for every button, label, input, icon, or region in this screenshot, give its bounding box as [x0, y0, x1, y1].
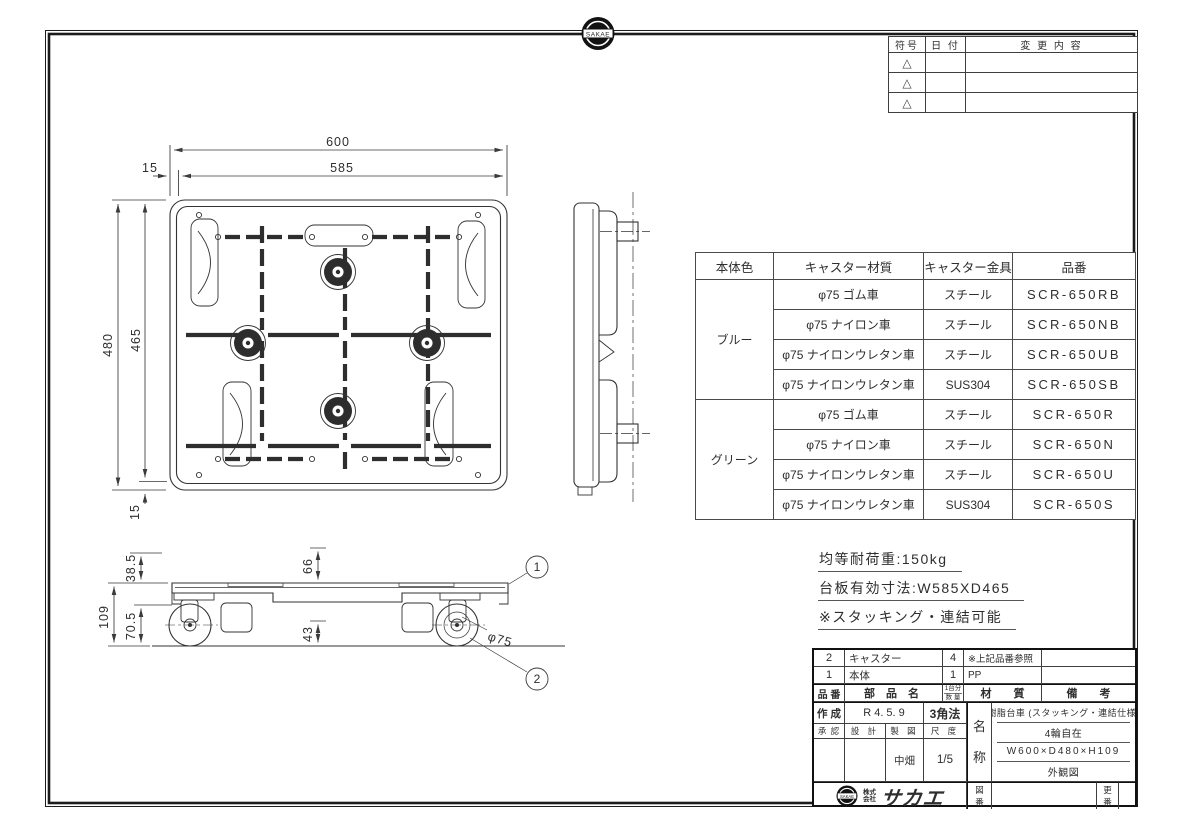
drawing-sheet: SAKAE [0, 0, 1183, 837]
approval-value [814, 739, 845, 782]
revision-no-label: 更 番 [1097, 782, 1119, 809]
rev-triangle-icon: △ [889, 73, 926, 93]
dim-15-bottom: 15 [128, 504, 142, 520]
name-label: 名 称 [967, 702, 992, 782]
caster-material: φ75 ナイロンウレタン車 [774, 340, 924, 370]
drafting-label: 製 図 [886, 724, 924, 739]
part-material-cell: ※上記品番参照 [964, 650, 1042, 667]
name-label-char2: 称 [973, 751, 986, 764]
part-no: SCR-650U [1013, 460, 1136, 490]
rev-col-symbol: 符号 [889, 37, 926, 53]
caster-material: φ75 ゴム車 [774, 400, 924, 430]
caster-material: φ75 ゴム車 [774, 280, 924, 310]
part-material-cell: PP [964, 667, 1042, 684]
caster-bracket: スチール [924, 280, 1013, 310]
part-name-cell: 本体 [845, 667, 943, 684]
dim-70-5: 70.5 [124, 612, 138, 640]
table-row: ブルー φ75 ゴム車 スチール SCR-650RB [696, 280, 1136, 310]
name-label-char1: 名 [973, 720, 986, 733]
revision-no-char2: 番 [1103, 798, 1112, 807]
rev-date-cell [926, 73, 966, 93]
dim-480: 480 [101, 333, 115, 357]
dim-66: 66 [301, 558, 315, 574]
caster-material: φ75 ナイロン車 [774, 430, 924, 460]
note-load-capacity: 均等耐荷重:150kg [818, 549, 962, 572]
dim-38-5: 38.5 [124, 554, 138, 582]
header-qty-line2: 数 量 [944, 694, 963, 702]
spec-col-part-no: 品番 [1013, 253, 1136, 280]
rev-date-cell [926, 53, 966, 73]
header-part-no: 品 番 [814, 684, 845, 702]
drawing-no-char2: 番 [975, 798, 984, 807]
part-remarks-cell [1042, 667, 1135, 684]
rev-triangle-icon: △ [889, 93, 926, 113]
scale-label: 尺 度 [924, 724, 967, 739]
dim-109: 109 [97, 605, 111, 629]
part-no: SCR-650RB [1013, 280, 1136, 310]
product-name-block: 樹脂台車 (スタッキング・連結仕様) 4輪自在 W600×D480×H109 外… [992, 702, 1135, 782]
drafter-name: 中畑 [886, 739, 924, 782]
caster-material: φ75 ナイロンウレタン車 [774, 490, 924, 520]
dim-15-left: 15 [142, 161, 158, 175]
dim-585: 585 [330, 161, 354, 175]
caster-bracket: スチール [924, 460, 1013, 490]
front-dimensions [108, 548, 548, 690]
rev-triangle-icon: △ [889, 53, 926, 73]
design-value [845, 739, 886, 782]
dim-600: 600 [326, 135, 350, 149]
part-no: SCR-650NB [1013, 310, 1136, 340]
header-qty-line1: 1台分 [944, 685, 963, 694]
note-stacking: ※スタッキング・連結可能 [818, 607, 1016, 630]
plan-view [170, 200, 507, 490]
dim-wheel-dia: φ75 [486, 629, 514, 649]
product-line-2: 4輪自在 [997, 723, 1130, 743]
caster-bracket: スチール [924, 340, 1013, 370]
projection-method: 3角法 [924, 702, 967, 724]
header-part-name: 部 品 名 [845, 684, 943, 702]
plan-dimensions [112, 145, 507, 504]
table-row: グリーン φ75 ゴム車 スチール SCR-650R [696, 400, 1136, 430]
note-deck-size: 台板有効寸法:W585XD465 [818, 578, 1024, 601]
company-logo: SAKAE 株式 会社 サカエ [814, 782, 967, 809]
design-label: 設 計 [845, 724, 886, 739]
caster-bracket: SUS304 [924, 370, 1013, 400]
part-no: SCR-650SB [1013, 370, 1136, 400]
rev-col-change: 変 更 内 容 [966, 37, 1138, 53]
sakae-badge-icon: SAKAE [582, 17, 615, 50]
spec-col-caster-bracket: キャスター金具 [924, 253, 1013, 280]
body-color-blue: ブルー [696, 280, 774, 400]
badge-text-small: SAKAE [840, 794, 854, 799]
product-line-3: W600×D480×H109 [997, 743, 1130, 763]
spec-col-caster-material: キャスター材質 [774, 253, 924, 280]
rev-col-date: 日 付 [926, 37, 966, 53]
caster-bracket: スチール [924, 400, 1013, 430]
spec-col-body-color: 本体色 [696, 253, 774, 280]
caster-bracket: SUS304 [924, 490, 1013, 520]
company-name: サカエ [879, 782, 945, 809]
header-remarks: 備 考 [1042, 684, 1135, 702]
side-view [574, 192, 650, 502]
part-no: SCR-650N [1013, 430, 1136, 460]
rev-change-cell [966, 93, 1138, 113]
part-no: SCR-650R [1013, 400, 1136, 430]
part-remarks-cell [1042, 650, 1135, 667]
drawing-no-label: 図 番 [967, 782, 992, 809]
rev-change-cell [966, 53, 1138, 73]
revision-no-value [1119, 782, 1135, 809]
created-date: R 4. 5. 9 [845, 702, 924, 724]
company-prefix-top: 株式 [863, 789, 876, 796]
revision-table: 符号 日 付 変 更 内 容 △ △ △ [888, 36, 1138, 113]
part-no-cell: 2 [814, 650, 845, 667]
caster-material: φ75 ナイロンウレタン車 [774, 460, 924, 490]
body-color-green: グリーン [696, 400, 774, 520]
caster-bracket: スチール [924, 310, 1013, 340]
drawing-no-char1: 図 [975, 786, 984, 795]
sakae-badge-small-icon: SAKAE [836, 785, 858, 807]
created-label: 作 成 [814, 702, 845, 724]
dim-465: 465 [129, 328, 143, 352]
header-qty: 1台分数 量 [943, 684, 964, 702]
dim-43: 43 [301, 626, 315, 642]
part-no: SCR-650S [1013, 490, 1136, 520]
approval-label: 承 認 [814, 724, 845, 739]
header-material: 材 質 [964, 684, 1042, 702]
title-block: 2 キャスター 4 ※上記品番参照 1 本体 1 PP 品 番 部 品 名 1台… [812, 648, 1137, 807]
balloon-2: 2 [534, 672, 541, 686]
drawing-no-value [992, 782, 1097, 809]
product-line-4: 外観図 [997, 762, 1130, 781]
caster-material: φ75 ナイロン車 [774, 310, 924, 340]
company-prefix-bottom: 会社 [863, 796, 876, 803]
rev-change-cell [966, 73, 1138, 93]
product-line-1: 樹脂台車 (スタッキング・連結仕様) [997, 703, 1130, 723]
part-no-cell: 1 [814, 667, 845, 684]
rev-date-cell [926, 93, 966, 113]
part-no: SCR-650UB [1013, 340, 1136, 370]
part-qty-cell: 1 [943, 667, 964, 684]
badge-text: SAKAE [586, 31, 610, 38]
part-qty-cell: 4 [943, 650, 964, 667]
scale-value: 1/5 [924, 739, 967, 782]
revision-no-char1: 更 [1103, 786, 1112, 795]
caster-material: φ75 ナイロンウレタン車 [774, 370, 924, 400]
part-name-cell: キャスター [845, 650, 943, 667]
caster-bracket: スチール [924, 430, 1013, 460]
spec-table: 本体色 キャスター材質 キャスター金具 品番 ブルー φ75 ゴム車 スチール … [695, 252, 1136, 520]
balloon-1: 1 [534, 560, 541, 574]
